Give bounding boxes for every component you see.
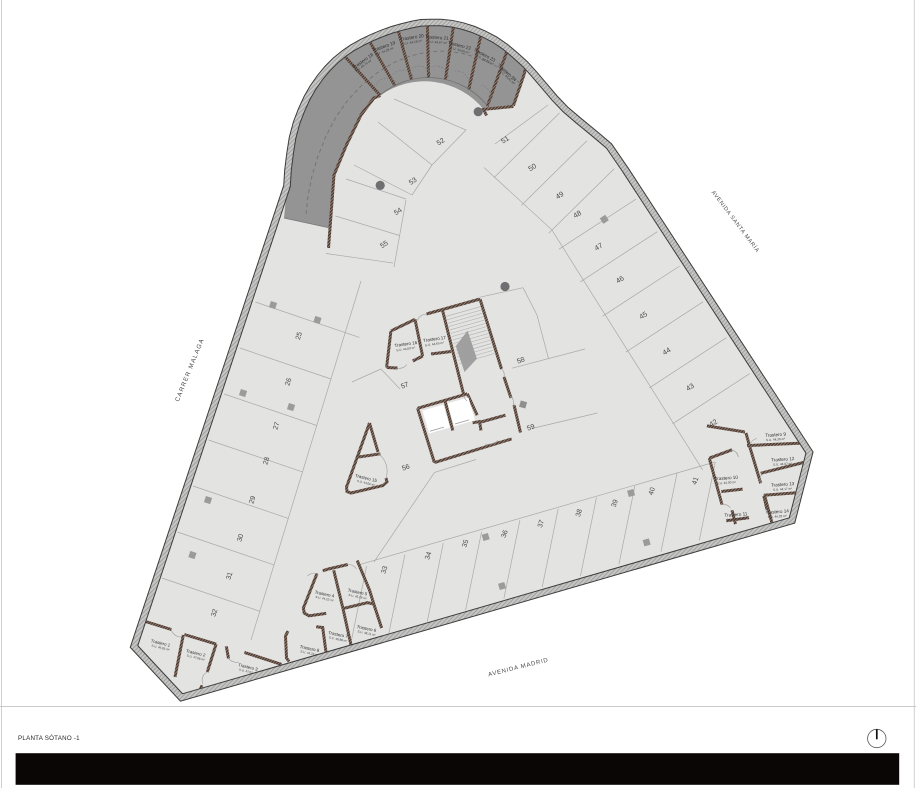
svg-text:PLANTA SÓTANO -1: PLANTA SÓTANO -1 — [18, 735, 80, 742]
